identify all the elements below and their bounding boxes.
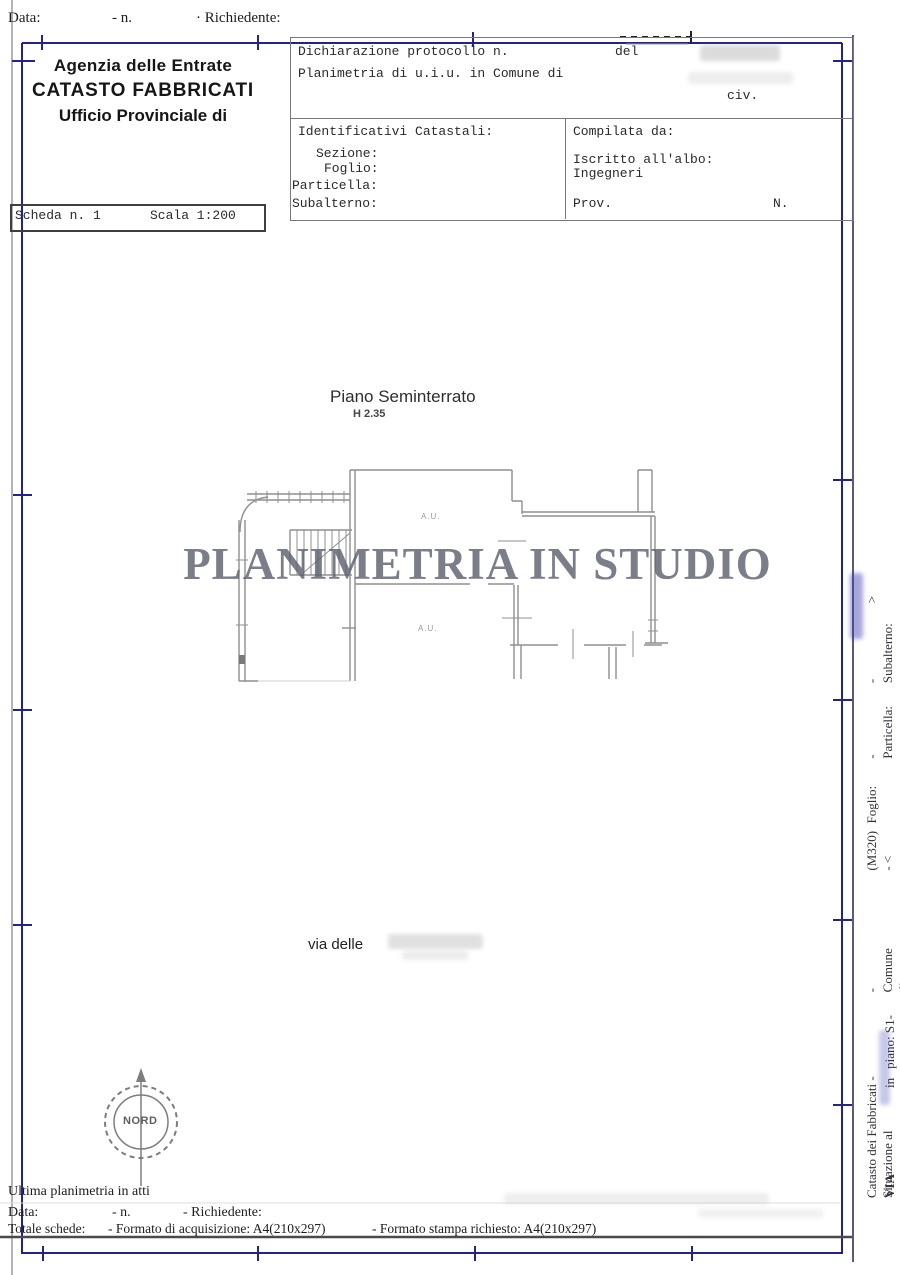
numero-label: N. bbox=[773, 196, 789, 211]
albo-value: Ingegneri bbox=[573, 166, 643, 181]
protocol-n-label: - n. bbox=[112, 10, 132, 27]
catasto-fabbricati-title: CATASTO FABBRICATI bbox=[24, 80, 262, 102]
planimetria-comune-label: Planimetria di u.i.u. in Comune di bbox=[298, 66, 563, 81]
redaction-smudge-street bbox=[388, 934, 483, 949]
totale-schede-label: Totale schede: bbox=[8, 1221, 85, 1237]
iscritto-albo-label: Iscritto all'albo: bbox=[573, 152, 713, 167]
compilata-da-label: Compilata da: bbox=[573, 124, 674, 139]
data-label: Data: bbox=[8, 10, 40, 27]
particella-label: Particella: bbox=[292, 178, 378, 193]
floor-height-label: H 2.35 bbox=[353, 408, 385, 420]
room-label-bottom: A.U. bbox=[418, 624, 438, 633]
floor-title: Piano Seminterrato bbox=[330, 387, 476, 407]
margin-foglio-text: Foglio: bbox=[864, 786, 880, 824]
footer-n-label: - n. bbox=[112, 1205, 131, 1221]
footer-richiedente-label: - Richiedente: bbox=[183, 1205, 262, 1221]
room-label-top: A.U. bbox=[421, 512, 441, 521]
form-divider-horizontal bbox=[290, 118, 852, 119]
sezione-label: Sezione: bbox=[316, 146, 378, 161]
margin-subalterno-text: - Subalterno: bbox=[864, 623, 896, 683]
identificativi-title: Identificativi Catastali: bbox=[298, 124, 493, 139]
redaction-smudge-margin-street bbox=[879, 1030, 890, 1105]
street-label: via delle bbox=[308, 936, 363, 953]
ufficio-provinciale-label: Ufficio Provinciale di bbox=[24, 106, 262, 126]
scheda-number: Scheda n. 1 bbox=[15, 208, 101, 223]
formato-acquisizione-label: - Formato di acquisizione: A4(210x297) bbox=[108, 1221, 325, 1237]
ultima-planimetria-label: Ultima planimetria in atti bbox=[8, 1184, 150, 1200]
margin-arrow-text: > bbox=[864, 596, 880, 603]
redaction-smudge-comune bbox=[688, 72, 793, 84]
form-divider-vertical bbox=[565, 118, 566, 219]
agency-header: Agenzia delle Entrate CATASTO FABBRICATI… bbox=[24, 56, 262, 126]
civico-label: civ. bbox=[727, 88, 758, 103]
footer-data-label: Data: bbox=[8, 1205, 38, 1221]
redaction-smudge-protocol bbox=[700, 45, 780, 61]
compass-nord-label: NORD bbox=[123, 1115, 157, 1127]
watermark: PLANIMETRIA IN STUDIO bbox=[130, 538, 825, 590]
catasto-planimetria-sheet: Data: - n. · Richiedente: Agenzia delle … bbox=[0, 0, 900, 1275]
scala-label: Scala 1:200 bbox=[150, 208, 236, 223]
margin-comune-text: - Comune di bbox=[864, 946, 900, 993]
margin-via-text: VIA bbox=[882, 1174, 898, 1198]
subalterno-label: Subalterno: bbox=[292, 196, 378, 211]
margin-particella-text: - Particella: bbox=[864, 706, 896, 759]
redaction-smudge-footer-2 bbox=[698, 1209, 823, 1218]
del-label: del bbox=[615, 44, 638, 59]
foglio-label: Foglio: bbox=[324, 161, 379, 176]
redaction-smudge-footer bbox=[504, 1193, 769, 1204]
margin-m320-text: (M320) - < bbox=[864, 829, 896, 870]
compass-rose bbox=[105, 1068, 177, 1186]
dichiarazione-protocollo-label: Dichiarazione protocollo n. bbox=[298, 44, 509, 59]
redaction-smudge-street-2 bbox=[402, 951, 468, 960]
richiedente-label: · Richiedente: bbox=[196, 10, 281, 27]
agency-name: Agenzia delle Entrate bbox=[24, 56, 262, 76]
formato-stampa-label: - Formato stampa richiesto: A4(210x297) bbox=[372, 1221, 596, 1237]
prov-label: Prov. bbox=[573, 196, 612, 211]
redaction-smudge-margin-date bbox=[850, 573, 863, 639]
